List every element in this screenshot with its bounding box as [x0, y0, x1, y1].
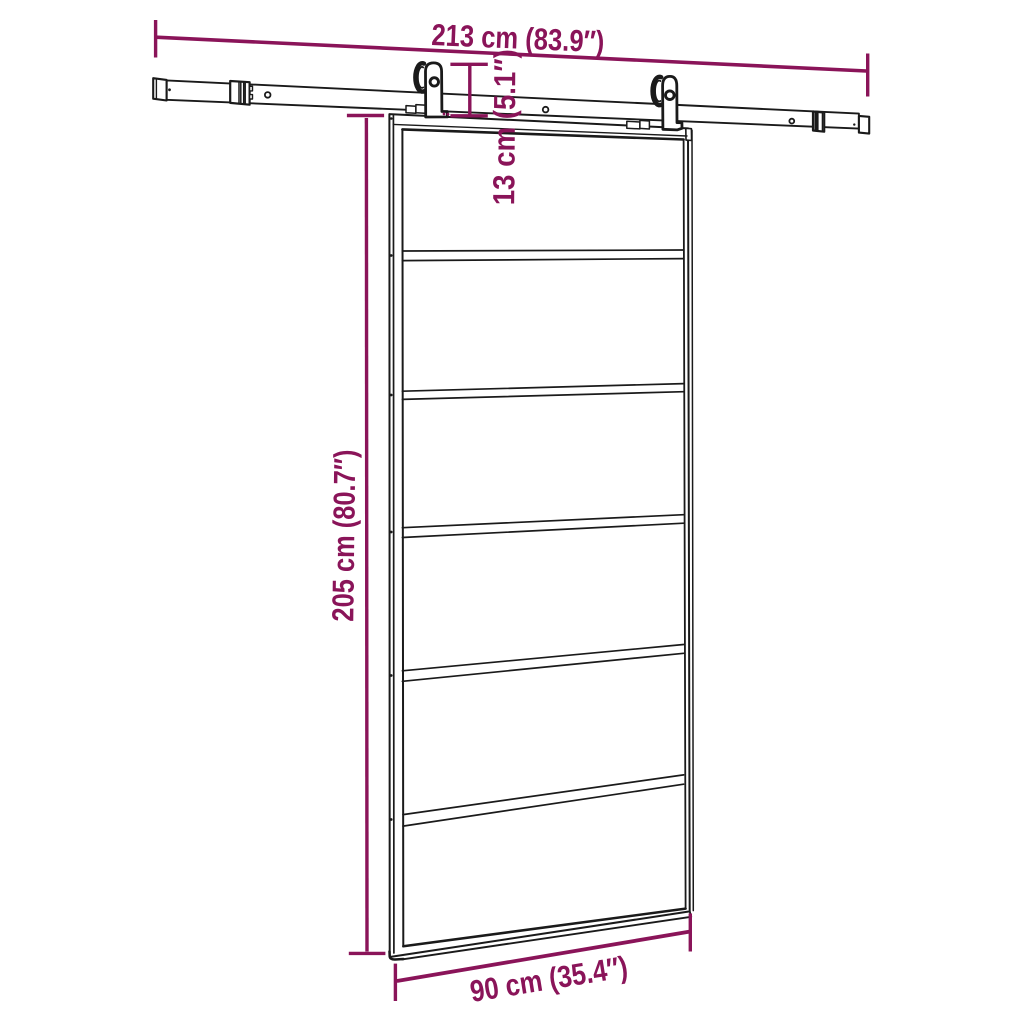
svg-text:205 cm (80.7″): 205 cm (80.7″): [326, 449, 362, 621]
svg-text:13 cm (5.1″): 13 cm (5.1″): [487, 49, 522, 205]
